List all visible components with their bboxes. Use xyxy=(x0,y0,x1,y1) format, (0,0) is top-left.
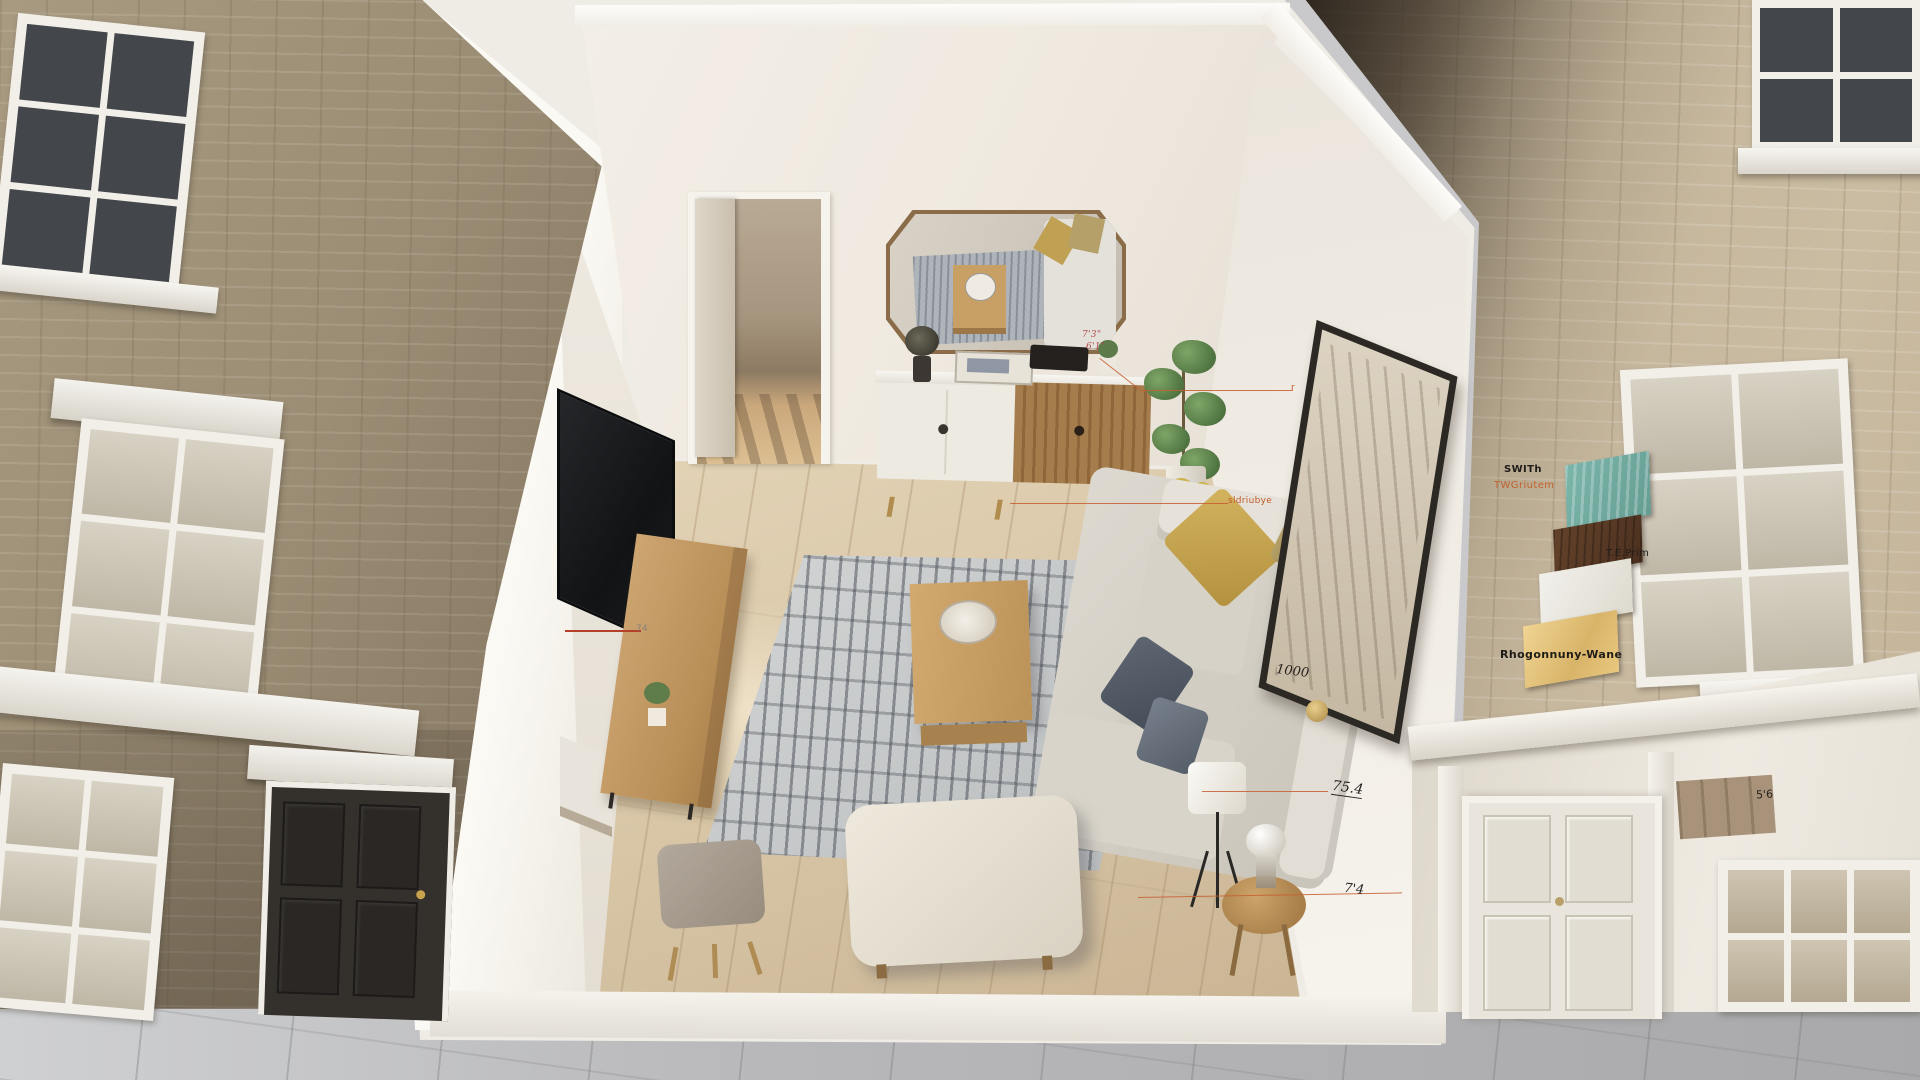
front-wall-cut-edge xyxy=(430,990,1446,1043)
dried-flowers xyxy=(905,326,939,356)
side-table-leg xyxy=(1282,924,1296,976)
right-building-window-middle xyxy=(1620,358,1864,687)
door-panel xyxy=(1565,915,1633,1011)
side-table-height-mark: 7'4 xyxy=(1343,881,1365,898)
door-panel xyxy=(1565,815,1633,903)
mirror-height-annotation-line2: 6'1" xyxy=(1086,342,1105,352)
window-panes xyxy=(0,774,163,1010)
plant-leaf xyxy=(1172,340,1216,374)
plant-leaf xyxy=(1152,424,1190,454)
white-entrance-door xyxy=(1462,796,1662,1019)
coffee-table-shelf xyxy=(921,722,1028,746)
plant-leaf xyxy=(1144,368,1184,400)
floor-lamp-leg xyxy=(1190,851,1209,908)
mirror-reflection-pillow xyxy=(1068,213,1106,253)
right-building-window-lower xyxy=(1718,860,1920,1012)
black-entrance-door xyxy=(258,781,456,1021)
left-building-window-upper xyxy=(0,13,205,293)
ottoman-foot xyxy=(876,964,887,979)
door-knob xyxy=(1555,897,1564,906)
stool-leg xyxy=(712,944,718,978)
table-lamp xyxy=(1240,824,1292,894)
brass-wall-sconce xyxy=(1306,700,1328,722)
upholstered-stool xyxy=(648,838,775,956)
floor-lamp-leg xyxy=(1216,850,1219,908)
door-panel xyxy=(281,801,346,887)
swatch-heading-secondary: TWGriutem xyxy=(1494,480,1554,491)
window-panes xyxy=(1760,8,1912,142)
door-panel xyxy=(356,804,421,890)
mirror-height-annotation-line1: 7'3" xyxy=(1082,330,1101,340)
art-height-leader-line xyxy=(1202,791,1328,792)
door-panel xyxy=(1483,915,1551,1011)
table-lamp-shade xyxy=(1246,824,1286,858)
left-building-window-lower xyxy=(0,763,174,1021)
table-lamp-base xyxy=(1256,854,1276,888)
coffee-table xyxy=(910,580,1033,724)
isometric-living-room-cutaway-render: SWITh TWGriutem T.E.Prim Rhogonnuny-Wane… xyxy=(0,0,1920,1080)
tv-width-mark: 74 xyxy=(636,624,648,634)
window-panes xyxy=(1630,369,1853,677)
book-on-tray xyxy=(967,358,1009,373)
side-table-leg xyxy=(1230,924,1244,976)
open-door-leaf xyxy=(695,199,735,457)
stone-lintel-patch xyxy=(1676,775,1776,840)
right-building-window-upper xyxy=(1752,0,1920,150)
door-panel xyxy=(277,897,342,995)
window-panes xyxy=(2,24,194,282)
facade-mark: 5'6 xyxy=(1756,788,1774,802)
window-panes xyxy=(62,429,273,717)
tv-width-line xyxy=(565,630,641,632)
door-panel xyxy=(1483,815,1551,903)
floor-lamp-shade xyxy=(1188,762,1246,814)
door-panel xyxy=(353,900,418,998)
black-radio xyxy=(1029,344,1088,371)
door-pilaster xyxy=(1438,766,1464,1012)
serving-plate xyxy=(938,599,998,645)
bench-plant xyxy=(640,682,674,726)
window-sill xyxy=(1738,148,1920,174)
swatch-bottom-label: Rhogonnuny-Wane xyxy=(1500,648,1622,661)
floor-lamp-pole xyxy=(1216,812,1219,854)
wall-finish-leader-line xyxy=(1010,503,1228,504)
wall-finish-label: sldriubye xyxy=(1228,496,1272,506)
bench-plant-pot xyxy=(648,708,666,726)
hallway-doorway xyxy=(688,192,830,464)
plant-leaf xyxy=(1184,392,1226,426)
vase-body xyxy=(913,356,931,382)
cream-ottoman xyxy=(844,794,1084,968)
dark-vase-with-dried-flowers xyxy=(905,326,939,382)
frame-pointer-mark: r xyxy=(1291,383,1295,393)
stool-cushion xyxy=(656,839,766,930)
door-knob xyxy=(416,890,425,899)
window-panes xyxy=(1728,870,1910,1002)
leader-line-to-frame xyxy=(1141,390,1293,391)
decor-tray xyxy=(954,351,1033,386)
ottoman-foot xyxy=(1042,955,1053,970)
swatch-heading-primary: SWITh xyxy=(1504,464,1542,475)
back-wall-top-edge xyxy=(575,3,1290,27)
swatch-finish-label: T.E.Prim xyxy=(1606,548,1649,559)
bench-plant-leaves xyxy=(644,682,670,704)
